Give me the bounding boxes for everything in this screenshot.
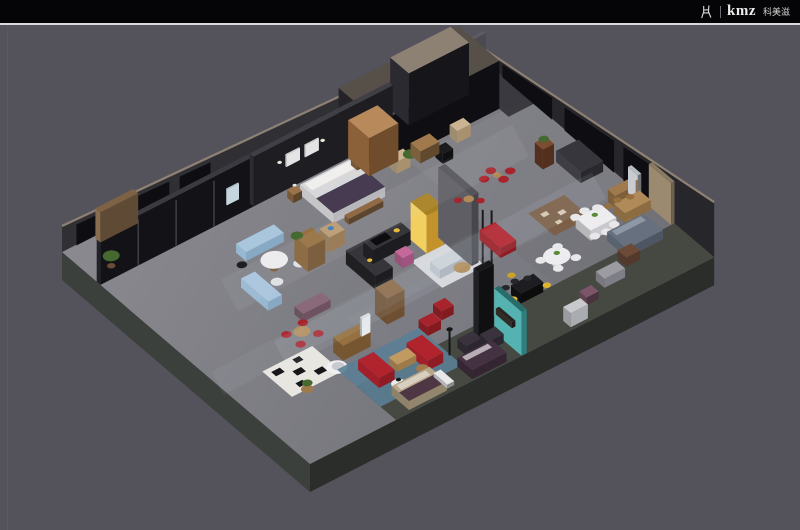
header-divider: [0, 23, 800, 25]
brand-chinese: 科美滋: [763, 5, 790, 18]
brand-logo: kmz 科美滋: [699, 0, 790, 23]
page: kmz 科美滋: [0, 0, 800, 530]
logo-divider: [720, 6, 721, 18]
chair-icon: [699, 4, 714, 20]
left-edge-line: [7, 25, 8, 530]
top-bar: kmz 科美滋: [0, 0, 800, 23]
brand-latin: kmz: [727, 0, 756, 23]
showroom-render: [0, 0, 800, 530]
